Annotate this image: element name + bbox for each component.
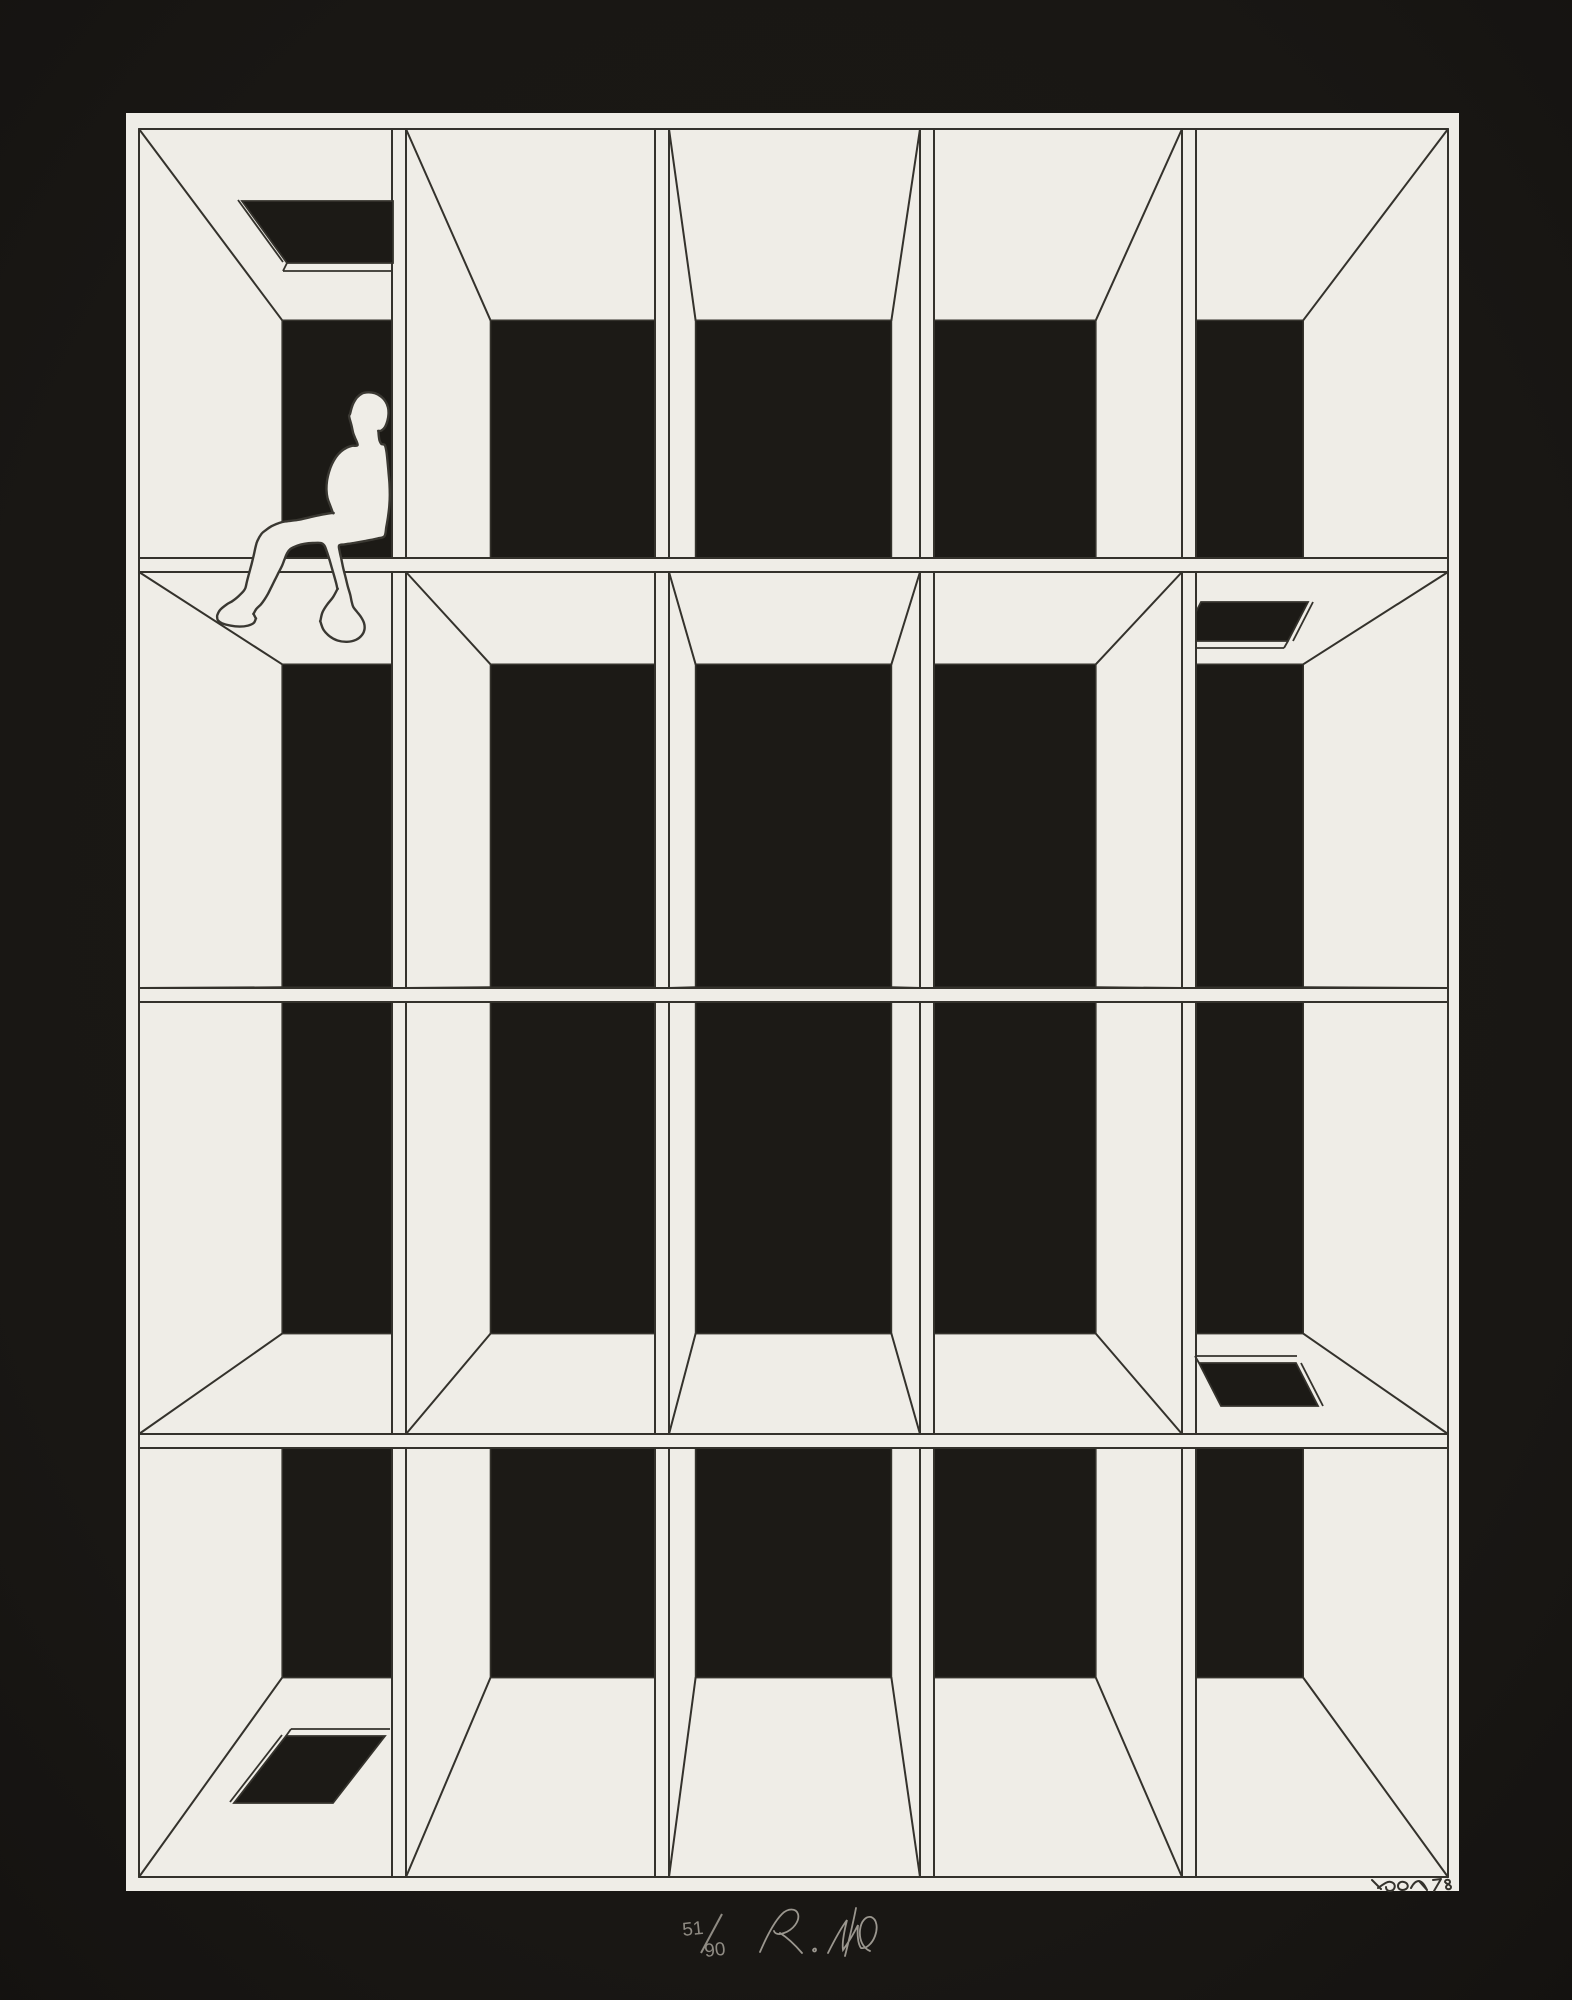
svg-text:51: 51	[681, 1918, 704, 1941]
